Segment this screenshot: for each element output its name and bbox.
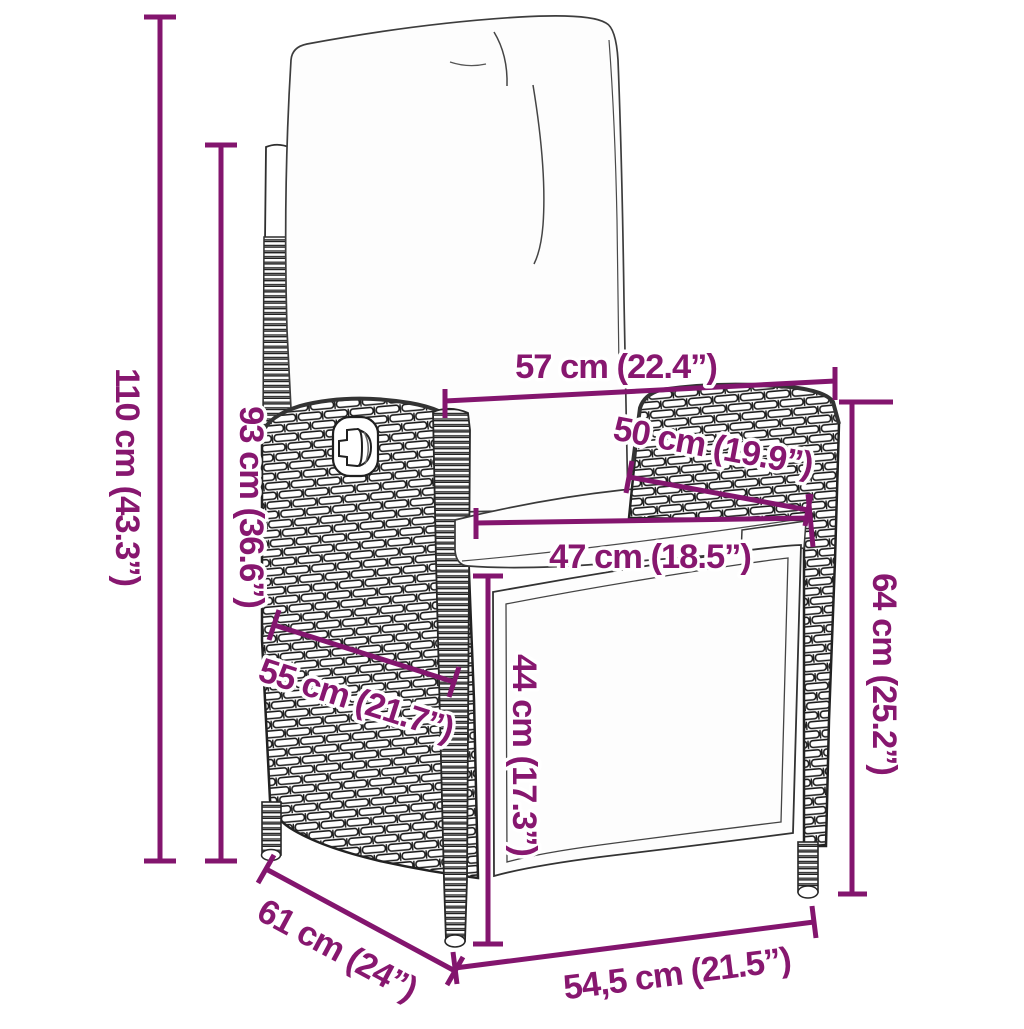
svg-text:44 cm (17.3”): 44 cm (17.3”) bbox=[505, 654, 543, 856]
svg-text:47 cm (18.5”): 47 cm (18.5”) bbox=[549, 538, 751, 576]
svg-text:110 cm (43.3”): 110 cm (43.3”) bbox=[108, 368, 146, 586]
svg-text:57 cm (22.4”): 57 cm (22.4”) bbox=[515, 348, 717, 386]
svg-text:93 cm (36.6”): 93 cm (36.6”) bbox=[232, 406, 270, 608]
svg-text:64 cm (25.2”): 64 cm (25.2”) bbox=[865, 573, 903, 775]
